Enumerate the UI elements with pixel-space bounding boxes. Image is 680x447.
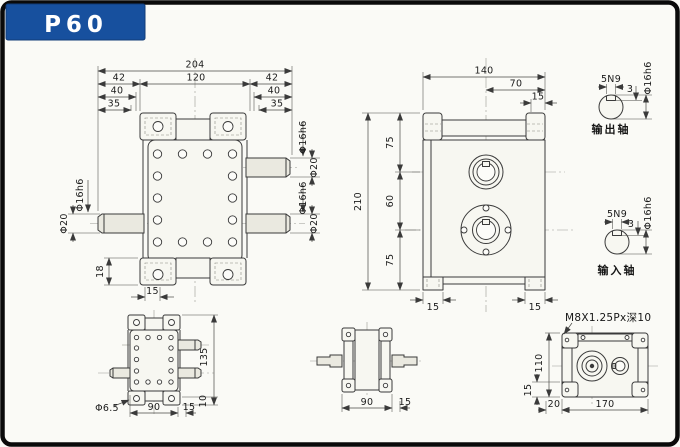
dim-dia16-right-bottom: Φ16h6 [298, 181, 309, 214]
mounting-plate [148, 140, 242, 262]
dim-dia20-left: Φ20 [59, 213, 70, 233]
dim-15: 15 [183, 402, 196, 413]
dim-135: 135 [199, 347, 210, 366]
flange-bolt-hole [153, 270, 163, 280]
dim-75-bottom: 75 [385, 254, 396, 267]
technical-drawing: P60 [0, 0, 680, 447]
dim-42-right: 42 [266, 73, 279, 84]
dim-dia16-right-top: Φ16h6 [298, 120, 309, 153]
dim-keyway-5N9: 5N9 [601, 74, 621, 85]
keyway [483, 220, 490, 225]
dim-35-right: 35 [271, 99, 284, 110]
dim-35-left: 35 [108, 99, 121, 110]
model-label: P60 [44, 12, 108, 38]
dim-18: 18 [95, 265, 106, 278]
top-slot [578, 334, 632, 341]
dim-204: 204 [185, 60, 204, 71]
output-shaft-caption: 输出轴 [592, 122, 631, 136]
gearbox-body [423, 113, 545, 290]
dim-15-bottom: 15 [146, 286, 159, 297]
dim-10: 10 [198, 395, 209, 408]
dim-dia16-input: Φ16h6 [643, 196, 654, 229]
dim-dia16-output: Φ16h6 [643, 61, 654, 94]
dim-75-top: 75 [385, 136, 396, 149]
thread-hole [581, 336, 585, 340]
shaft-right-bottom [246, 214, 290, 233]
thread-note: M8X1.25Px深10 [565, 312, 651, 324]
dim-70: 70 [510, 79, 523, 90]
thread-hole [625, 336, 629, 340]
dim-dia20-right-bottom: Φ20 [309, 213, 320, 233]
dim-dia20-right-top: Φ20 [309, 157, 320, 177]
dim-20: 20 [548, 399, 561, 410]
dim-hole-dia: Φ6.5 [95, 403, 119, 414]
dim-15: 15 [399, 397, 412, 408]
dim-15-top: 15 [532, 92, 545, 103]
catalog-page: P60 [0, 0, 680, 447]
input-shaft-caption: 输入轴 [598, 263, 637, 277]
flange-bolt-hole [223, 122, 233, 132]
dim-keyway-5N9: 5N9 [607, 209, 627, 220]
output-shaft-right-top [246, 158, 290, 177]
dim-key-depth-3: 3 [627, 84, 633, 95]
input-shaft-left [98, 214, 144, 233]
keyway [483, 162, 490, 167]
dim-40-left: 40 [111, 86, 124, 97]
flange-bolt-hole [223, 270, 233, 280]
dim-90: 90 [148, 402, 161, 413]
dim-90: 90 [361, 397, 374, 408]
dim-42-left: 42 [113, 73, 126, 84]
dim-140: 140 [474, 66, 493, 77]
dim-15-foot-right: 15 [529, 302, 542, 313]
dim-120: 120 [186, 73, 205, 84]
model-badge: P60 [6, 4, 145, 40]
shaft-section [605, 230, 629, 254]
dim-110: 110 [534, 353, 545, 372]
dim-210: 210 [353, 192, 364, 211]
dim-15-foot-left: 15 [427, 302, 440, 313]
dim-40-right: 40 [268, 86, 281, 97]
dim-dia16-left: Φ16h6 [75, 178, 86, 211]
shaft-section [599, 95, 623, 119]
dim-15: 15 [523, 384, 534, 397]
dim-170: 170 [595, 399, 614, 410]
dim-60: 60 [385, 195, 396, 208]
dim-key-depth-3: 3 [628, 219, 634, 230]
flange-bolt-hole [153, 122, 163, 132]
plate-edge [423, 140, 431, 277]
gearbox-body [562, 333, 648, 397]
gearbox-body [342, 328, 392, 392]
